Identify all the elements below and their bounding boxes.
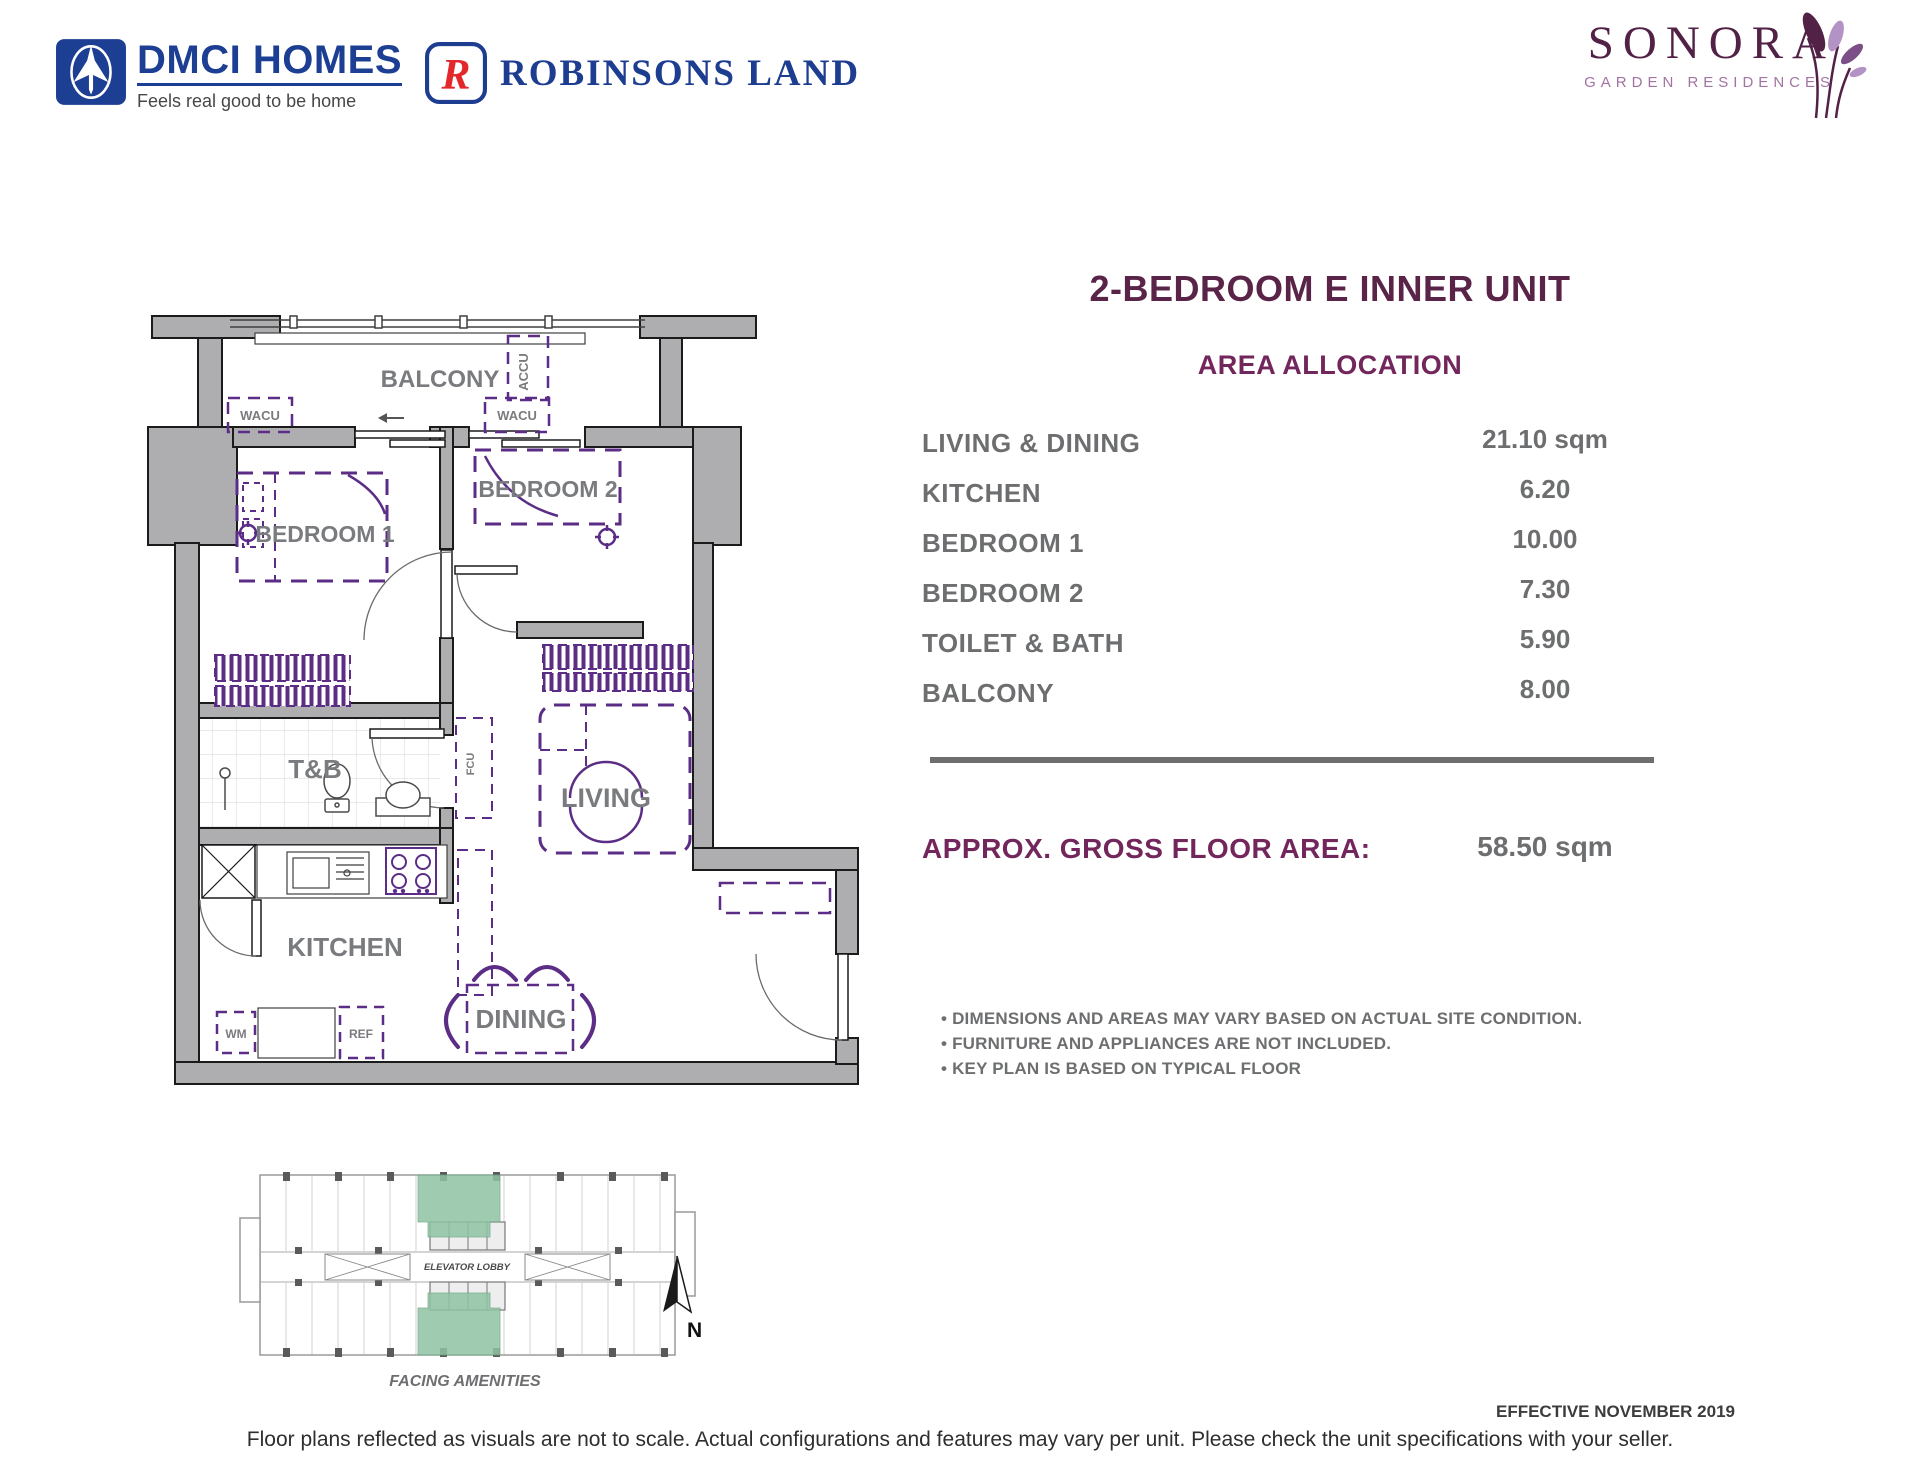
note-line: • DIMENSIONS AND AREAS MAY VARY BASED ON… bbox=[941, 1006, 1582, 1031]
balcony-railing bbox=[230, 316, 645, 344]
wardrobe2-icon bbox=[543, 645, 693, 669]
room-label-dining: DINING bbox=[476, 1004, 567, 1034]
sonora-wordmark: SONORA GARDEN RESIDENCES bbox=[1584, 20, 1835, 91]
highlighted-unit-north bbox=[418, 1175, 500, 1237]
chair-icon bbox=[446, 995, 458, 1047]
area-value: 7.30 bbox=[1455, 574, 1635, 605]
sonora-subname: GARDEN RESIDENCES bbox=[1584, 74, 1835, 91]
area-label: KITCHEN bbox=[922, 478, 1041, 509]
gross-floor-area-value: 58.50 sqm bbox=[1455, 831, 1635, 863]
sofa-icon bbox=[540, 705, 690, 853]
room-label-bedroom1: BEDROOM 1 bbox=[255, 521, 395, 547]
area-allocation-table: LIVING & DINING 21.10 sqm KITCHEN 6.20 B… bbox=[922, 428, 1676, 738]
room-label-wacu-right: WACU bbox=[497, 408, 537, 423]
floor-plan: BALCONY ACCU WACU WACU BEDROOM 1 BEDROOM… bbox=[140, 250, 860, 1095]
note-line: • KEY PLAN IS BASED ON TYPICAL FLOOR bbox=[941, 1056, 1582, 1081]
dmci-name: DMCI HOMES bbox=[137, 40, 402, 86]
key-plan: ELEVATOR LOBBY N FACING AMENITIES bbox=[225, 1160, 745, 1405]
robinsons-land-wordmark: ROBINSONS LAND bbox=[500, 52, 860, 95]
disclaimer-notes: • DIMENSIONS AND AREAS MAY VARY BASED ON… bbox=[941, 1006, 1582, 1081]
area-value: 5.90 bbox=[1455, 624, 1635, 655]
north-label: N bbox=[687, 1319, 702, 1342]
page-title: 2-BEDROOM E INNER UNIT bbox=[950, 268, 1710, 310]
effective-date: EFFECTIVE NOVEMBER 2019 bbox=[1496, 1402, 1735, 1422]
chair-icon bbox=[526, 967, 568, 980]
room-label-ref: REF bbox=[349, 1027, 373, 1041]
balcony-arrow-icon bbox=[378, 413, 404, 423]
robinsons-r-letter: R bbox=[441, 51, 471, 99]
dmci-tagline: Feels real good to be home bbox=[137, 91, 402, 112]
table-row: BALCONY 8.00 bbox=[922, 678, 1676, 728]
area-label: BALCONY bbox=[922, 678, 1054, 709]
dmci-homes-icon bbox=[55, 38, 127, 111]
room-label-living: LIVING bbox=[561, 783, 651, 813]
shaft-box bbox=[202, 845, 255, 898]
highlighted-unit-south bbox=[418, 1293, 500, 1355]
area-value: 8.00 bbox=[1455, 674, 1635, 705]
table-row: LIVING & DINING 21.10 sqm bbox=[922, 428, 1676, 478]
area-allocation-heading: AREA ALLOCATION bbox=[950, 350, 1710, 381]
table-row: BEDROOM 2 7.30 bbox=[922, 578, 1676, 628]
room-label-wm: WM bbox=[225, 1027, 246, 1041]
wardrobe1-icon bbox=[215, 655, 350, 681]
table-row: KITCHEN 6.20 bbox=[922, 478, 1676, 528]
footer-disclaimer: Floor plans reflected as visuals are not… bbox=[0, 1428, 1920, 1452]
stove-icon bbox=[386, 848, 436, 894]
area-label: LIVING & DINING bbox=[922, 428, 1140, 459]
room-label-kitchen: KITCHEN bbox=[287, 932, 403, 962]
table-row: BEDROOM 1 10.00 bbox=[922, 528, 1676, 578]
note-line: • FURNITURE AND APPLIANCES ARE NOT INCLU… bbox=[941, 1031, 1582, 1056]
area-label: BEDROOM 1 bbox=[922, 528, 1084, 559]
robinsons-land-icon: R bbox=[425, 42, 487, 109]
dmci-homes-wordmark: DMCI HOMES Feels real good to be home bbox=[137, 40, 402, 112]
table-divider bbox=[930, 757, 1654, 763]
foyer-closet bbox=[720, 883, 830, 913]
table-row: TOILET & BATH 5.90 bbox=[922, 628, 1676, 678]
room-label-tb: T&B bbox=[288, 754, 341, 784]
area-value: 21.10 sqm bbox=[1455, 424, 1635, 455]
room-label-bedroom2: BEDROOM 2 bbox=[478, 476, 617, 502]
floor-plan-sheet: DMCI HOMES Feels real good to be home R … bbox=[0, 0, 1920, 1484]
chair-icon bbox=[474, 967, 516, 980]
sonora-name: SONORA bbox=[1584, 20, 1835, 67]
elevator-lobby-label: ELEVATOR LOBBY bbox=[424, 1262, 512, 1273]
keyplan-caption: FACING AMENITIES bbox=[389, 1373, 541, 1390]
area-value: 10.00 bbox=[1455, 524, 1635, 555]
keyplan-building: ELEVATOR LOBBY bbox=[240, 1172, 695, 1357]
area-label: TOILET & BATH bbox=[922, 628, 1124, 659]
room-label-fcu: FCU bbox=[465, 753, 477, 776]
area-label: BEDROOM 2 bbox=[922, 578, 1084, 609]
chair-icon bbox=[582, 995, 594, 1047]
room-label-balcony: BALCONY bbox=[381, 366, 500, 393]
room-label-accu: ACCU bbox=[516, 353, 531, 391]
kitchen-lower-counter bbox=[258, 1008, 335, 1058]
room-label-wacu-left: WACU bbox=[240, 408, 280, 423]
area-value: 6.20 bbox=[1455, 474, 1635, 505]
gross-floor-area-label: APPROX. GROSS FLOOR AREA: bbox=[922, 833, 1371, 865]
